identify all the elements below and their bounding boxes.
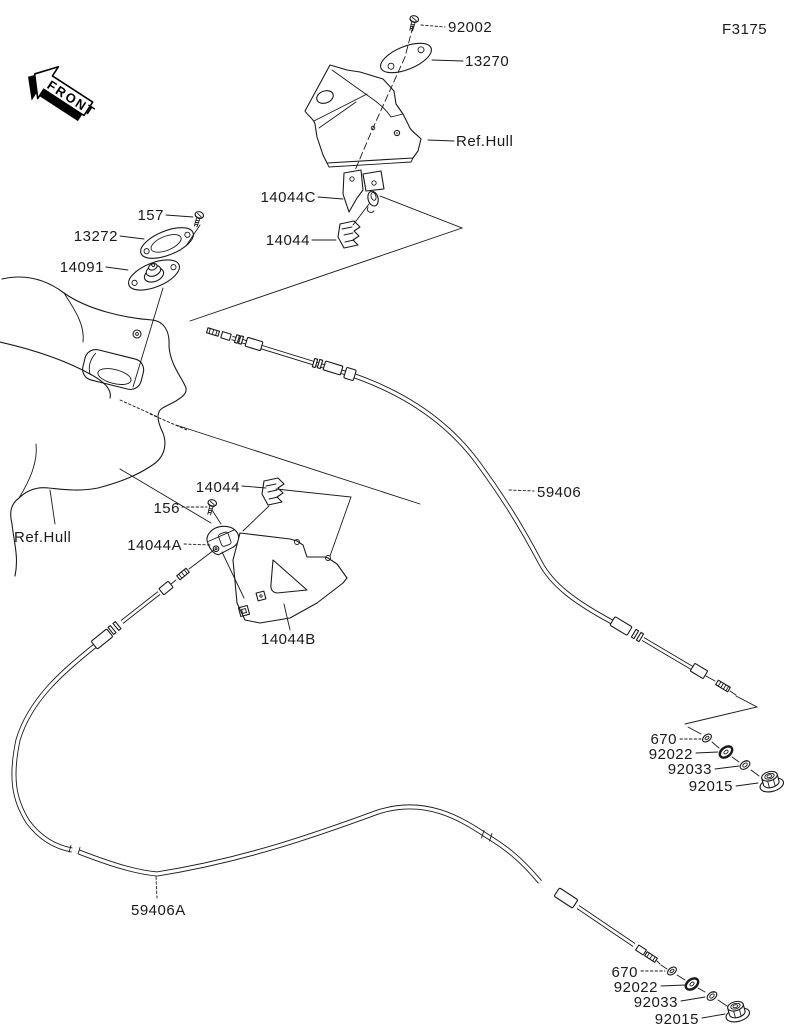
washer-670-icon <box>701 732 713 743</box>
connector-line <box>189 550 214 569</box>
connector-line <box>353 204 369 225</box>
screw-92002-icon <box>407 15 419 32</box>
part-label-92015-lower: 92015 <box>655 1011 699 1028</box>
seal-92022-icon <box>718 744 735 760</box>
front-direction-arrow: FRONT <box>18 56 105 133</box>
sensor-14091 <box>124 254 183 296</box>
bracket-14044B <box>233 533 347 623</box>
part-label-92015-upper: 92015 <box>689 778 733 795</box>
part-label-14091: 14091 <box>60 259 104 276</box>
lockwasher-92033-icon <box>739 759 752 771</box>
part-label-13272: 13272 <box>74 228 118 245</box>
part-label-92002: 92002 <box>448 19 492 36</box>
part-label-14044C: 14044C <box>260 189 316 206</box>
clamp-14044-mid <box>262 478 284 505</box>
steering-cable-59406A <box>14 568 660 964</box>
connector-line <box>212 510 221 524</box>
cover-plate-13270 <box>377 37 436 79</box>
hull-recess <box>80 347 146 392</box>
part-label-157: 157 <box>137 207 164 224</box>
part-label-59406: 59406 <box>537 484 581 501</box>
part-label-14044A: 14044A <box>127 537 182 554</box>
cables-parts-diagram: F3175 92002 13270 Ref.Hull 14044C 14044 … <box>0 0 800 1034</box>
ref-hull-label-left: Ref.Hull <box>14 529 71 546</box>
part-label-14044-mid: 14044 <box>196 479 240 496</box>
part-label-59406A: 59406A <box>131 902 186 919</box>
bracket-hole <box>315 88 335 105</box>
washer-670-icon <box>666 965 678 976</box>
part-label-14044-top: 14044 <box>266 232 310 249</box>
screw-157-icon <box>192 211 205 228</box>
part-label-92033-lower: 92033 <box>634 994 678 1011</box>
cable-end-fitting <box>610 617 736 695</box>
hull-hole <box>133 330 141 338</box>
part-label-14044B: 14044B <box>261 631 316 648</box>
part-label-92033-upper: 92033 <box>668 761 712 778</box>
lockwasher-92033-icon <box>706 990 719 1002</box>
ref-hull-label-top: Ref.Hull <box>456 133 513 150</box>
seal-92022-icon <box>684 976 701 992</box>
bracket-14044C <box>343 170 384 212</box>
pointer-line <box>190 196 462 321</box>
part-label-13270: 13270 <box>465 53 509 70</box>
clamp-14044-top <box>338 221 360 248</box>
cable-end-fitting <box>91 568 189 649</box>
hull-bracket-top <box>305 65 421 167</box>
part-label-156: 156 <box>153 500 180 517</box>
nut-92015-icon <box>757 769 785 795</box>
parts-diagram-page: F3175 92002 13270 Ref.Hull 14044C 14044 … <box>0 0 800 1034</box>
cable-end-fitting <box>554 888 660 964</box>
figure-code: F3175 <box>722 21 767 38</box>
connector-line <box>243 506 269 531</box>
label-leader-lines <box>50 25 758 1018</box>
nut-92015-icon <box>723 999 751 1025</box>
pointer-line <box>685 696 757 724</box>
